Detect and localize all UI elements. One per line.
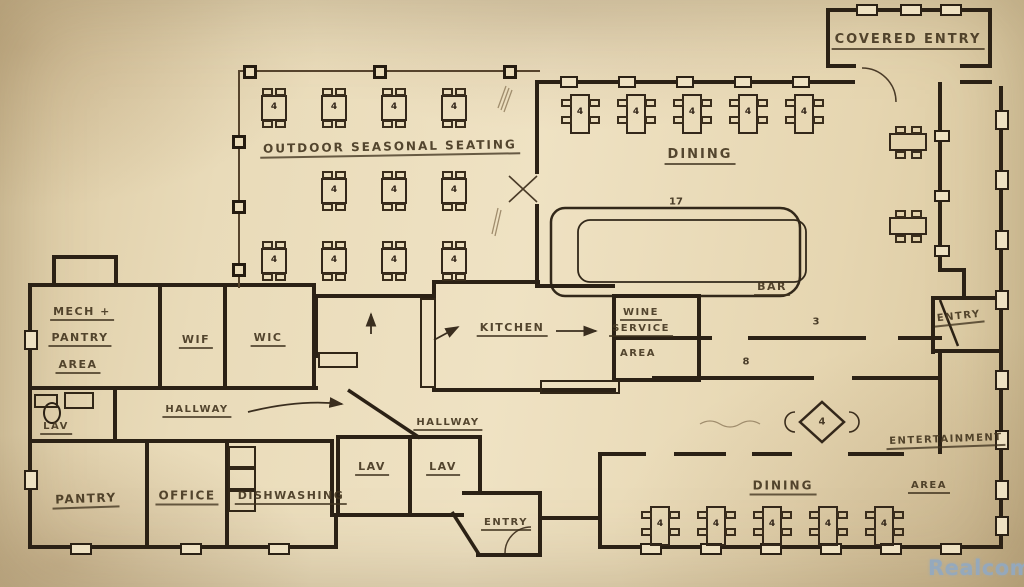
chair	[455, 273, 466, 281]
chair	[275, 241, 286, 249]
chair	[455, 120, 466, 128]
table-seat-count: 4	[652, 519, 668, 529]
dining-top-label: DINING	[665, 147, 736, 165]
chair	[837, 528, 848, 536]
window-tick	[995, 170, 1009, 190]
chair	[442, 88, 453, 96]
wall	[598, 452, 646, 456]
chair	[455, 88, 466, 96]
chair	[382, 171, 393, 179]
chair	[455, 203, 466, 211]
mech-pantry-label-line1: MECH +	[50, 305, 114, 321]
wine-service-label-line3: AREA	[617, 348, 659, 360]
patio-post	[232, 200, 246, 214]
mech-pantry-label-line3: AREA	[55, 358, 100, 374]
chair	[895, 210, 906, 218]
chair	[865, 528, 876, 536]
hallway-center-label: HALLWAY	[413, 417, 482, 431]
chair	[725, 511, 736, 519]
chair	[382, 241, 393, 249]
entry-south-label: ENTRY	[481, 517, 531, 531]
chair	[893, 511, 904, 519]
chair	[275, 120, 286, 128]
wine-service-label-line1: WINE	[620, 307, 662, 321]
wall	[478, 435, 482, 495]
dining-table-4top: 4	[738, 94, 758, 134]
outdoor-table-4top: 4	[321, 95, 347, 121]
outdoor-table-4top: 4	[261, 248, 287, 274]
table-seat-count: 4	[796, 107, 812, 117]
chair	[335, 120, 346, 128]
wall	[114, 255, 118, 285]
chair	[753, 528, 764, 536]
chair	[322, 241, 333, 249]
wall	[612, 294, 701, 298]
chair	[395, 241, 406, 249]
chair	[757, 99, 768, 107]
wall	[52, 255, 118, 259]
chair	[322, 88, 333, 96]
table-seat-count: 4	[323, 102, 345, 112]
window-tick	[995, 370, 1009, 390]
wall	[598, 452, 602, 549]
chair	[442, 203, 453, 211]
chair	[382, 273, 393, 281]
chair	[781, 511, 792, 519]
wall	[674, 452, 726, 456]
wall	[931, 349, 1003, 353]
wall	[52, 255, 56, 285]
chair	[837, 511, 848, 519]
patio-post	[232, 263, 246, 277]
table-seat-count: 4	[628, 107, 644, 117]
chair	[262, 273, 273, 281]
patio-post	[243, 65, 257, 79]
kitchen-counter	[540, 380, 620, 394]
dining-table-4top: 4	[762, 506, 782, 546]
wif-label: WIF	[179, 333, 213, 349]
kitchen-arrow-left	[434, 327, 458, 340]
chair	[669, 511, 680, 519]
chair	[781, 528, 792, 536]
dining-table-4top: 4	[794, 94, 814, 134]
wall	[223, 287, 227, 390]
chair	[729, 116, 740, 124]
chair	[911, 151, 922, 159]
outdoor-table-4top: 4	[381, 95, 407, 121]
window-tick	[995, 480, 1009, 500]
kitchen-label: KITCHEN	[477, 321, 548, 337]
chair	[697, 528, 708, 536]
window-tick	[934, 245, 950, 257]
window-tick	[180, 543, 202, 555]
chair	[382, 88, 393, 96]
patio-post	[373, 65, 387, 79]
chair	[669, 528, 680, 536]
lav-sink	[64, 392, 94, 409]
chair	[893, 528, 904, 536]
chair	[785, 116, 796, 124]
wall	[960, 64, 992, 68]
table-seat-count: 4	[323, 255, 345, 265]
chair	[729, 99, 740, 107]
dishwashing-equipment	[228, 446, 256, 468]
outdoor-table-4top: 4	[321, 248, 347, 274]
chair	[809, 528, 820, 536]
table-seat-count: 4	[708, 519, 724, 529]
chair	[911, 235, 922, 243]
floor-plan: COVERED ENTRY DINING OUTDOOR SEASONAL SE…	[0, 0, 1024, 587]
wall	[330, 439, 334, 517]
wall	[535, 80, 539, 174]
chair	[641, 528, 652, 536]
chair	[335, 88, 346, 96]
dining-table-4top: 4	[626, 94, 646, 134]
chair	[322, 273, 333, 281]
window-tick	[940, 4, 962, 16]
window-tick	[734, 76, 752, 88]
window-tick	[676, 76, 694, 88]
entertainment-label-line2: AREA	[908, 480, 950, 494]
chair	[697, 511, 708, 519]
outdoor-table-4top: 4	[381, 178, 407, 204]
wall	[826, 8, 830, 68]
chair	[335, 241, 346, 249]
chair	[455, 241, 466, 249]
chair	[865, 511, 876, 519]
wall	[462, 491, 542, 495]
table-seat-count: 4	[383, 185, 405, 195]
table-seat-count: 4	[263, 102, 285, 112]
chair	[561, 116, 572, 124]
chair	[322, 171, 333, 179]
chair	[641, 511, 652, 519]
covered-entry-label: COVERED ENTRY	[832, 32, 985, 50]
chair	[395, 171, 406, 179]
window-tick	[24, 330, 38, 350]
dining-table-4top: 4	[682, 94, 702, 134]
chair	[645, 99, 656, 107]
table-seat-count: 4	[572, 107, 588, 117]
patio-post	[503, 65, 517, 79]
wall	[748, 336, 866, 340]
chair	[335, 273, 346, 281]
table-seat-count: 4	[383, 102, 405, 112]
chair	[895, 126, 906, 134]
chair	[275, 273, 286, 281]
chair	[322, 203, 333, 211]
table-seat-count: 4	[443, 255, 465, 265]
wall	[826, 64, 856, 68]
window-tick	[70, 543, 92, 555]
window-tick	[24, 470, 38, 490]
wall	[898, 336, 942, 340]
chair	[753, 511, 764, 519]
wall	[28, 283, 316, 287]
window-tick	[560, 76, 578, 88]
chair	[262, 120, 273, 128]
table-seat-count: 4	[764, 519, 780, 529]
realcomp-watermark: Realcomp	[928, 556, 1024, 580]
hallway-diagonal-wall	[348, 390, 420, 438]
bar-counter-inner	[578, 220, 806, 282]
wall	[334, 513, 338, 549]
table-seat-count: 4	[740, 107, 756, 117]
table-seat-count: 4	[820, 519, 836, 529]
wall	[538, 491, 542, 557]
kitchen-counter	[318, 352, 358, 368]
chair	[673, 99, 684, 107]
wall	[28, 439, 332, 443]
dining-table-2top	[889, 133, 927, 151]
lav-sink	[34, 394, 58, 408]
chair	[589, 99, 600, 107]
wall	[334, 513, 464, 517]
chair	[895, 235, 906, 243]
window-tick	[268, 543, 290, 555]
chair	[335, 203, 346, 211]
dining-table-2top	[889, 217, 927, 235]
outdoor-table-4top: 4	[381, 248, 407, 274]
kitchen-counter	[420, 298, 436, 388]
diamond-table-seat-count: 4	[819, 417, 826, 428]
window-tick	[995, 230, 1009, 250]
window-tick	[856, 4, 878, 16]
chair	[725, 528, 736, 536]
chair	[395, 203, 406, 211]
wall	[999, 306, 1003, 549]
wall	[538, 516, 602, 520]
chair	[617, 99, 628, 107]
dining-table-4top: 4	[650, 506, 670, 546]
chair	[785, 99, 796, 107]
chair	[442, 171, 453, 179]
chair	[589, 116, 600, 124]
table-seat-count: 4	[684, 107, 700, 117]
dining-table-4top: 4	[706, 506, 726, 546]
wall-thin	[240, 70, 540, 72]
wall	[848, 452, 904, 456]
wall	[852, 376, 940, 380]
wall	[931, 296, 995, 300]
chair	[322, 120, 333, 128]
outdoor-table-4top: 4	[441, 178, 467, 204]
patio-post	[232, 135, 246, 149]
outdoor-table-4top: 4	[321, 178, 347, 204]
seat-count-note: 3	[813, 317, 820, 328]
window-tick	[940, 543, 962, 555]
chair	[673, 116, 684, 124]
wall	[145, 439, 149, 549]
chair	[262, 88, 273, 96]
chair	[442, 273, 453, 281]
wall-thin	[238, 70, 240, 288]
outdoor-table-4top: 4	[441, 248, 467, 274]
wall	[28, 386, 318, 390]
chair	[911, 126, 922, 134]
window-tick	[618, 76, 636, 88]
chair	[382, 120, 393, 128]
wall	[537, 284, 615, 288]
pencil-scribble	[492, 208, 501, 236]
entry-door-swing	[862, 68, 896, 102]
wall	[476, 553, 542, 557]
chair	[442, 120, 453, 128]
hallway-west-label: HALLWAY	[162, 404, 231, 418]
seat-count-note: 8	[743, 357, 750, 368]
wall	[113, 386, 117, 443]
table-seat-count: 4	[443, 102, 465, 112]
table-seat-count: 4	[323, 185, 345, 195]
wall	[960, 80, 992, 84]
chair	[617, 116, 628, 124]
table-seat-count: 4	[263, 255, 285, 265]
dining-south-label: DINING	[750, 479, 817, 496]
chair	[262, 241, 273, 249]
pencil-scribble	[700, 421, 760, 427]
dishwashing-equipment	[228, 468, 256, 490]
chair	[395, 88, 406, 96]
chair	[813, 99, 824, 107]
window-tick	[792, 76, 810, 88]
chair	[701, 116, 712, 124]
wall	[432, 280, 436, 298]
chair	[335, 171, 346, 179]
wic-label: WIC	[251, 331, 286, 347]
window-tick	[995, 290, 1009, 310]
chair	[813, 116, 824, 124]
window-tick	[995, 516, 1009, 536]
window-tick	[934, 130, 950, 142]
chair	[701, 99, 712, 107]
wall	[28, 283, 32, 549]
wall	[988, 8, 992, 68]
wall	[314, 294, 436, 298]
dining-table-4top: 4	[874, 506, 894, 546]
table-seat-count: 4	[443, 185, 465, 195]
bar-label: BAR	[754, 280, 790, 296]
lav-2-label: LAV	[426, 460, 460, 476]
dining-table-4top: 4	[570, 94, 590, 134]
window-tick	[934, 190, 950, 202]
wall	[158, 287, 162, 390]
wall	[535, 204, 539, 288]
lav-small-label: LAV	[40, 421, 72, 435]
hallway-arrow	[248, 403, 342, 412]
pantry-label: PANTRY	[52, 490, 120, 509]
window-tick	[900, 4, 922, 16]
window-tick	[995, 110, 1009, 130]
table-seat-count: 4	[876, 519, 892, 529]
wall	[652, 376, 814, 380]
wine-service-label-line2: SERVICE	[609, 323, 673, 337]
chair	[395, 120, 406, 128]
wall	[408, 435, 412, 515]
table-seat-count: 4	[383, 255, 405, 265]
chair	[382, 203, 393, 211]
chair	[275, 88, 286, 96]
outdoor-table-4top: 4	[261, 95, 287, 121]
wall	[752, 452, 792, 456]
office-label: OFFICE	[155, 489, 218, 506]
chair	[442, 241, 453, 249]
chair	[757, 116, 768, 124]
plan-linework-layer	[0, 0, 1024, 587]
seat-count-note: 17	[669, 197, 683, 208]
dishwashing-label: DISHWASHING	[235, 489, 347, 505]
pencil-scribble	[498, 86, 512, 112]
chair	[395, 273, 406, 281]
wall	[938, 82, 942, 272]
dining-table-4top: 4	[818, 506, 838, 546]
wall	[312, 283, 316, 390]
chair	[645, 116, 656, 124]
chair	[895, 151, 906, 159]
chair	[911, 210, 922, 218]
outdoor-table-4top: 4	[441, 95, 467, 121]
mech-pantry-label-line2: PANTRY	[48, 331, 111, 347]
chair	[561, 99, 572, 107]
lav-1-label: LAV	[355, 460, 389, 476]
entry-south-diagonal-wall	[452, 512, 480, 556]
chair	[809, 511, 820, 519]
chair	[455, 171, 466, 179]
